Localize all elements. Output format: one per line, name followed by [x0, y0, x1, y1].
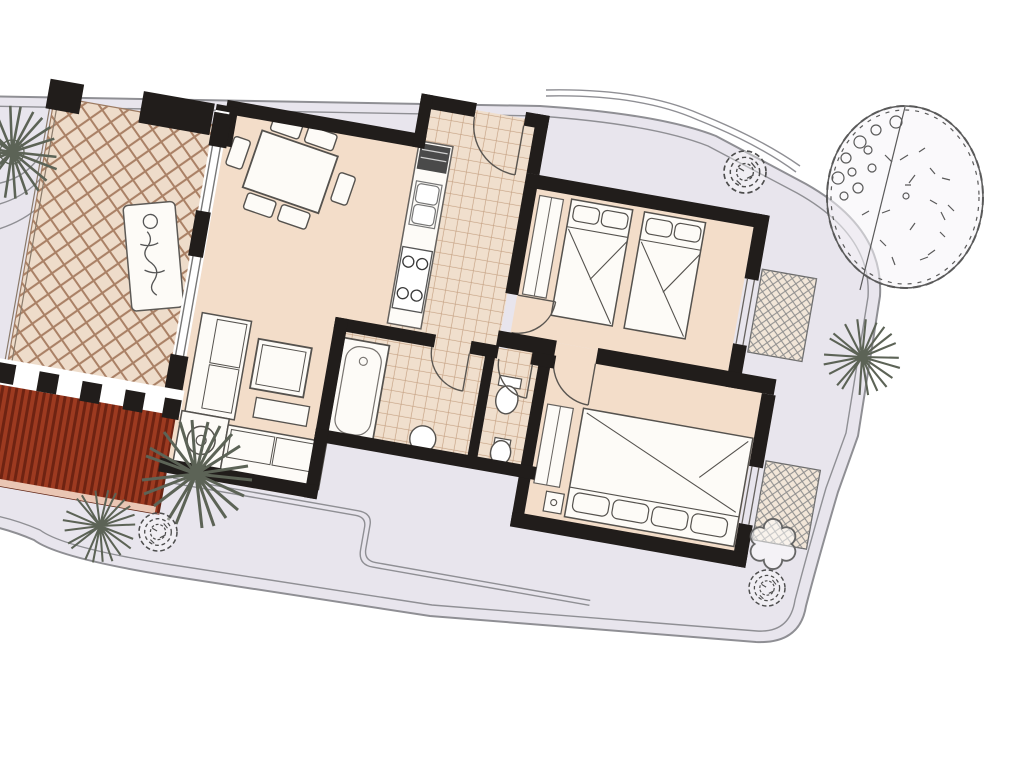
terrace-post [45, 79, 84, 114]
sun-lounger [123, 201, 184, 311]
floor-plan-page: Two-bedroom apartment floor plan with te… [0, 0, 1024, 768]
large-tree [827, 106, 983, 290]
shrub-top [724, 151, 766, 193]
shrub-bottom-right [749, 570, 785, 606]
floor-plan-drawing: Two-bedroom apartment floor plan with te… [0, 0, 1024, 768]
nightstand [543, 491, 564, 514]
shrub-bottom-left [139, 513, 177, 551]
